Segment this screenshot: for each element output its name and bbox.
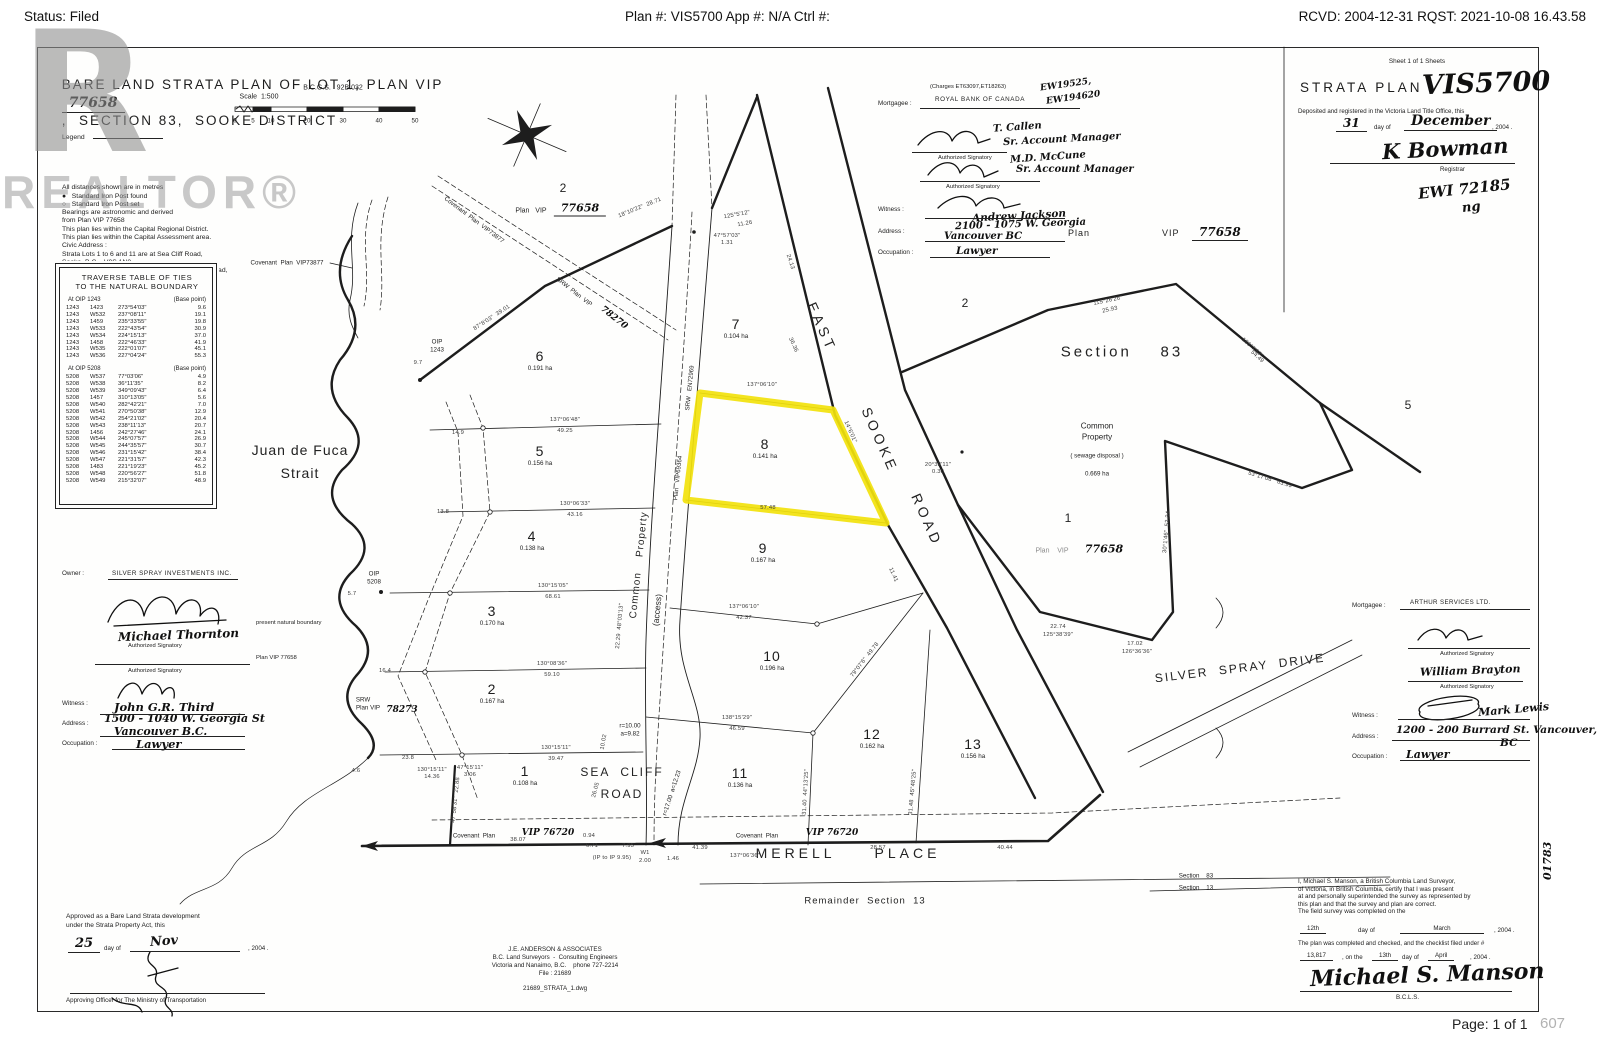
traverse-cell: 7.0 <box>176 402 208 409</box>
traverse-cell: 222°01'07" <box>118 346 176 353</box>
dimension-label: 47°15'11" <box>457 765 483 771</box>
page-count: Page: 1 of 1 <box>1452 1016 1528 1032</box>
dimension-label: 22.74 <box>1050 624 1066 630</box>
traverse-row: 1243W536227°04'24"55.3 <box>66 353 208 360</box>
dimension-label: 14.36 <box>424 774 440 780</box>
map-label: Section 13 <box>1179 885 1213 892</box>
traverse-cell: 5208 <box>66 388 90 395</box>
traverse-cell: 5208 <box>66 374 90 381</box>
traverse-cell: 77°03'06" <box>118 374 176 381</box>
lot-7-label: 70.104 ha <box>724 316 749 340</box>
lot-area: 0.191 ha <box>528 365 553 372</box>
dimension-label: 0.94 <box>583 833 595 839</box>
traverse-cell: 1243 <box>66 312 90 319</box>
traverse-cell: 37.0 <box>176 333 208 340</box>
arthur-witness-label: Witness : <box>1352 712 1378 720</box>
map-label: 1243 <box>430 347 444 354</box>
dimension-label: 13.8 <box>437 509 449 515</box>
traverse-row: 52081457310°13'05"5.6 <box>66 395 208 402</box>
map-label: OIP <box>432 339 443 346</box>
owner-occupation-label: Occupation : <box>62 740 97 748</box>
arthur-address-2: BC <box>1500 737 1517 749</box>
traverse-cell: W543 <box>90 423 118 430</box>
traverse-cell: 6.4 <box>176 388 208 395</box>
traverse-cell: 5208 <box>66 381 90 388</box>
traverse-cell: 224°15'13" <box>118 333 176 340</box>
map-label: ( sewage disposal ) <box>1070 453 1123 460</box>
traverse-cell: W540 <box>90 402 118 409</box>
cert-day-2: 13th <box>1372 952 1398 961</box>
dimension-label: 138°15'29" <box>722 715 752 721</box>
plan-ref-vip: VIP <box>1162 228 1180 238</box>
traverse-cell: 215°32'07" <box>118 478 176 485</box>
lot-number: 7 <box>724 316 749 332</box>
cert-on-the: , on the <box>1342 954 1363 961</box>
traverse-cell: W548 <box>90 471 118 478</box>
certificate-line: this plan and that the survey and plan a… <box>1298 901 1533 909</box>
lot-area: 0.196 ha <box>760 665 785 672</box>
traverse-row: 5208W543238°11'13"20.7 <box>66 423 208 430</box>
certificate-line: of Victoria, in British Columbia, certif… <box>1298 886 1533 894</box>
traverse-cell: W532 <box>90 312 118 319</box>
reg-day: 31 <box>1336 116 1367 132</box>
legend-line: This plan lies within the Capital Region… <box>62 226 242 234</box>
dimension-label: 2.00 <box>639 858 651 864</box>
map-label: 5208 <box>367 579 381 586</box>
traverse-title-2: TO THE NATURAL BOUNDARY <box>66 282 208 291</box>
dimension-label: 1.46 <box>667 856 679 862</box>
map-label: Plan VIP <box>1035 548 1068 555</box>
lot-area: 0.136 ha <box>728 782 753 789</box>
stream <box>180 758 368 904</box>
map-label: 77658 <box>554 202 606 217</box>
traverse-cell: 5208 <box>66 430 90 437</box>
lot-3-label: 30.170 ha <box>480 603 505 627</box>
traverse-cell: 48.9 <box>176 478 208 485</box>
map-label: Covenant Plan <box>736 833 778 840</box>
lot-11-label: 110.136 ha <box>728 765 753 789</box>
cert-year: , 2004 . <box>1494 927 1515 934</box>
dimension-label: 57.48 <box>760 505 776 511</box>
traverse-g1-label: At OIP 1243 <box>68 297 101 303</box>
arthur-auth2-label: Authorized Signatory <box>1440 684 1494 690</box>
dashed-lines <box>364 95 1340 845</box>
dimension-label: 137°06'10" <box>747 382 777 388</box>
traverse-cell: 222°46'33" <box>118 340 176 347</box>
dimension-label: 137°06'36" <box>730 853 760 859</box>
traverse-cell: 4.9 <box>176 374 208 381</box>
lot-area: 0.162 ha <box>860 743 885 750</box>
document-viewer: Status: Filed Plan #: VIS5700 App #: N/A… <box>0 0 1600 1049</box>
legend-line: Civic Address : <box>62 242 242 250</box>
cert-month-2: April <box>1428 952 1454 961</box>
map-label: 5 <box>251 118 254 125</box>
traverse-row: 5208W544245°07'57"26.9 <box>66 436 208 443</box>
traverse-cell: 227°04'24" <box>118 353 176 360</box>
traverse-g1-note: (Base point) <box>174 297 206 303</box>
traverse-title-1: TRAVERSE TABLE OF TIES <box>66 273 208 282</box>
lot-number: 1 <box>513 763 538 779</box>
traverse-cell: 5208 <box>66 443 90 450</box>
traverse-cell: 1457 <box>90 395 118 402</box>
firm-file-number: File : 21689 <box>440 970 670 977</box>
traverse-cell: W535 <box>90 346 118 353</box>
map-label: Section 83 <box>1179 873 1213 880</box>
arthur-mortgagee-label: Mortgagee : <box>1352 602 1386 610</box>
cert-checklist-number: 13,817 <box>1300 952 1333 961</box>
map-label: 2 <box>962 296 969 310</box>
common-property-access-road <box>645 208 712 845</box>
lot-number: 2 <box>480 681 505 697</box>
traverse-cell: 242°27'46" <box>118 430 176 437</box>
rbc-sig2-title: Sr. Account Manager <box>1016 164 1134 175</box>
traverse-row: 5208W540282°42'21"7.0 <box>66 402 208 409</box>
map-label: 5 <box>1405 398 1412 412</box>
rbc-auth-label: Authorized Signatory <box>938 155 992 161</box>
lot8-highlight <box>686 393 886 523</box>
east-sooke-road-west-edge <box>757 95 1035 798</box>
traverse-cell: 220°56'27" <box>118 471 176 478</box>
lot-9-label: 90.167 ha <box>751 540 776 564</box>
traverse-cell: 1423 <box>90 305 118 312</box>
lot-13-label: 130.156 ha <box>961 736 986 760</box>
rbc-charges: (Charges ET63097,ET18263) <box>930 84 1006 90</box>
dimension-label: 20°32'11" <box>925 462 951 468</box>
lot-area: 0.141 ha <box>753 453 778 460</box>
east-sooke-road-east-edge <box>828 88 1103 792</box>
firm-name: J.E. ANDERSON & ASSOCIATES <box>440 946 670 953</box>
lot-8-label: 80.141 ha <box>753 436 778 460</box>
dimension-label: 49.25 <box>557 428 573 434</box>
owner-auth2-label: Authorized Signatory <box>128 668 182 676</box>
map-label: VIP 76720 <box>522 828 574 838</box>
traverse-cell: W539 <box>90 388 118 395</box>
traverse-cell: W537 <box>90 374 118 381</box>
map-label: Plan VIP <box>515 208 546 215</box>
reg-initials: ng <box>1461 199 1481 216</box>
traverse-cell: 282°42'21" <box>118 402 176 409</box>
traverse-row: 1243W533222°43'54"30.9 <box>66 326 208 333</box>
traverse-cell: 5208 <box>66 409 90 416</box>
dimension-label: 17.02 <box>1127 641 1143 647</box>
dimension-label: 38.07 <box>510 837 526 843</box>
dimension-label: 6.71 <box>586 843 598 849</box>
traverse-cell: 5208 <box>66 436 90 443</box>
realtor-watermark-text: REALTOR® <box>2 165 302 219</box>
traverse-row: 5208W53777°03'06"4.9 <box>66 374 208 381</box>
dimension-label: 43.16 <box>567 512 583 518</box>
traverse-row: 5208W549215°32'07"48.9 <box>66 478 208 485</box>
lot-area: 0.108 ha <box>513 780 538 787</box>
map-label: MERELL PLACE <box>756 845 941 861</box>
owner-label: Owner : <box>62 570 84 578</box>
lot-2-label: 20.167 ha <box>480 681 505 705</box>
approval-officer-label: Approving Officer for The Ministry of Tr… <box>66 997 206 1004</box>
arthur-auth-label: Authorized Signatory <box>1440 651 1494 657</box>
traverse-cell: 1458 <box>90 340 118 347</box>
cert-month: March <box>1400 925 1484 934</box>
rbc-occupation-label: Occupation : <box>878 249 913 257</box>
traverse-cell: 5208 <box>66 423 90 430</box>
traverse-row: 12431423273°54'03"9.6 <box>66 305 208 312</box>
lot-area: 0.170 ha <box>480 620 505 627</box>
boundary-note-line: present natural boundary <box>256 620 322 627</box>
dimension-label: 9.7 <box>414 360 423 366</box>
traverse-cell: 238°11'13" <box>118 423 176 430</box>
traverse-row: 12431458222°46'33"41.9 <box>66 340 208 347</box>
traverse-cell: 222°43'54" <box>118 326 176 333</box>
owner-witness-label: Witness : <box>62 700 88 708</box>
traverse-cell: 36°11'35" <box>118 381 176 388</box>
lot-6-label: 60.191 ha <box>528 348 553 372</box>
iron-post-markers <box>423 426 819 757</box>
traverse-row: 1243W532237°08'11"19.1 <box>66 312 208 319</box>
dimension-label: 16.4 <box>379 668 391 674</box>
traverse-cell: 45.1 <box>176 346 208 353</box>
dimension-label: 59.10 <box>544 672 560 678</box>
traverse-cell: 19.1 <box>176 312 208 319</box>
sheet-count: Sheet 1 of 1 Sheets <box>1352 58 1482 65</box>
owner-address-label: Address : <box>62 720 89 728</box>
rbc-bank-name: ROYAL BANK OF CANADA <box>935 96 1025 103</box>
traverse-cell: 237°08'11" <box>118 312 176 319</box>
traverse-cell: 5208 <box>66 416 90 423</box>
arthur-address-1: 1200 - 200 Burrard St. Vancouver, <box>1396 724 1597 736</box>
lot-number: 9 <box>751 540 776 556</box>
traverse-row: 1243W535222°01'07"45.1 <box>66 346 208 353</box>
traverse-row: 5208W546231°15'42"38.4 <box>66 450 208 457</box>
traverse-cell: W545 <box>90 443 118 450</box>
rbc-auth2-label: Authorized Signatory <box>946 184 1000 190</box>
lot-area: 0.138 ha <box>520 545 545 552</box>
traverse-row: 1243W534224°15'13"37.0 <box>66 333 208 340</box>
traverse-row: 52081456242°27'46"24.1 <box>66 430 208 437</box>
map-label: 77658 <box>1085 543 1123 556</box>
dimension-label: 130°15'11" <box>417 767 447 773</box>
traverse-cell: W538 <box>90 381 118 388</box>
traverse-cell: 310°13'05" <box>118 395 176 402</box>
traverse-cell: 1459 <box>90 319 118 326</box>
cert-day: 12th <box>1300 925 1326 934</box>
approval-day-of: day of <box>104 945 121 952</box>
dimension-label: 23.8 <box>402 755 414 761</box>
reg-day-of: day of <box>1374 124 1391 131</box>
plan-ref-plan: Plan <box>1068 228 1090 238</box>
traverse-cell: 30.7 <box>176 443 208 450</box>
dimension-label: 126°36'36" <box>1122 649 1152 655</box>
lot-5-label: 50.156 ha <box>528 443 553 467</box>
cert-day-of: day of <box>1358 927 1375 934</box>
traverse-cell: 41.9 <box>176 340 208 347</box>
reg-month: December <box>1404 113 1497 131</box>
approval-month: Nov <box>150 933 179 950</box>
dimension-label: 68.61 <box>545 594 561 600</box>
lot-1-label: 10.108 ha <box>513 763 538 787</box>
traverse-cell: 9.6 <box>176 305 208 312</box>
traverse-row: 5208W53836°11'35"8.2 <box>66 381 208 388</box>
traverse-cell: 231°15'42" <box>118 450 176 457</box>
map-label: SRW <box>356 697 370 704</box>
dimension-label: 5.7 <box>348 591 357 597</box>
map-label: Scale 1:500 <box>240 94 279 101</box>
lot-area: 0.156 ha <box>528 460 553 467</box>
traverse-row: 5208W548220°56'27"51.8 <box>66 471 208 478</box>
traverse-cell: 5208 <box>66 478 90 485</box>
dimension-label: 47°57'03" <box>714 233 741 239</box>
map-label: Common <box>1081 422 1113 431</box>
arthur-name: ARTHUR SERVICES LTD. <box>1410 599 1491 606</box>
traverse-cell: W534 <box>90 333 118 340</box>
rbc-occupation: Lawyer <box>956 245 998 257</box>
lot-number: 12 <box>860 726 885 742</box>
map-label: 10 <box>268 118 275 125</box>
map-label: r=10.00 <box>619 723 640 730</box>
map-label: 30 <box>340 118 347 125</box>
map-label: Plan VIP <box>356 705 380 712</box>
traverse-cell: 254°21'02" <box>118 416 176 423</box>
lot-number: 5 <box>528 443 553 459</box>
dimension-label: 130°15'11" <box>541 745 571 751</box>
lot-12-label: 120.162 ha <box>860 726 885 750</box>
traverse-cell: 349°09'43" <box>118 388 176 395</box>
dimension-label: 7.95 <box>622 843 634 849</box>
traverse-cell: 12.9 <box>176 409 208 416</box>
map-label: 2 <box>560 181 567 195</box>
map-label: ROAD <box>601 787 644 801</box>
approval-year: , 2004 . <box>248 945 269 952</box>
approval-day: 25 <box>68 936 100 953</box>
bcls-label: B.C.L.S. <box>1396 994 1419 1001</box>
traverse-cell: 1243 <box>66 346 90 353</box>
dimension-label: 4.6 <box>352 768 361 774</box>
traverse-cell: 5208 <box>66 450 90 457</box>
owner-auth-label: Authorized Signatory <box>128 643 182 651</box>
traverse-table: TRAVERSE TABLE OF TIES TO THE NATURAL BO… <box>55 263 217 509</box>
traverse-cell: W549 <box>90 478 118 485</box>
traverse-cell: 1243 <box>66 326 90 333</box>
map-label: 20 <box>304 118 311 125</box>
owner-name: SILVER SPRAY INVESTMENTS INC. <box>112 570 232 578</box>
dimension-label: 130°06'33" <box>560 501 590 507</box>
certificate-line: at and personally superintended the surv… <box>1298 893 1533 901</box>
lot-number: 4 <box>520 528 545 544</box>
traverse-cell: 1243 <box>66 333 90 340</box>
traverse-cell: 244°35'57" <box>118 443 176 450</box>
traverse-cell: 20.7 <box>176 423 208 430</box>
east-block-boundary <box>902 284 1420 472</box>
traverse-cell: 5208 <box>66 464 90 471</box>
traverse-cell: 5208 <box>66 395 90 402</box>
map-label: 1 <box>1065 511 1072 525</box>
boundary-note: present natural boundary Plan VIP 77658 <box>256 606 322 676</box>
lot-number: 3 <box>480 603 505 619</box>
traverse-cell: 42.3 <box>176 457 208 464</box>
reg-year: , 2004 . <box>1492 124 1513 131</box>
traverse-cell: 24.1 <box>176 430 208 437</box>
traverse-row: 5208W542254°21'02"20.4 <box>66 416 208 423</box>
traverse-cell: 1243 <box>66 305 90 312</box>
lot-number: 13 <box>961 736 986 752</box>
traverse-g2-label: At OIP 5208 <box>68 366 101 372</box>
legend-line: This plan lies within the Capital Assess… <box>62 234 242 242</box>
lot-number: 6 <box>528 348 553 364</box>
map-label: Covenant Plan <box>453 833 495 840</box>
traverse-cell: W541 <box>90 409 118 416</box>
traverse-cell: 30.9 <box>176 326 208 333</box>
traverse-cell: 270°50'38" <box>118 409 176 416</box>
cert-checklist-line: The plan was completed and checked, and … <box>1298 940 1484 947</box>
arthur-address-label: Address : <box>1352 733 1379 741</box>
dimension-label: 3.06 <box>464 772 476 778</box>
map-label: 0.669 ha <box>1085 471 1109 478</box>
traverse-row: 5208W545244°35'57"30.7 <box>66 443 208 450</box>
traverse-cell: 19.8 <box>176 319 208 326</box>
traverse-cell: 8.2 <box>176 381 208 388</box>
traverse-cell: 1243 <box>66 319 90 326</box>
dimension-label: 0.30 <box>932 469 944 475</box>
dimension-label: 125°38'39" <box>1043 632 1073 638</box>
registrar-label: Registrar <box>1440 166 1465 173</box>
map-label: SEA CLIFF <box>580 765 663 779</box>
lot-number: 11 <box>728 765 753 781</box>
traverse-cell: W546 <box>90 450 118 457</box>
plan-ref-number: 77658 <box>1192 225 1248 241</box>
map-label: Covenant Plan VIP73877 <box>251 260 324 267</box>
dimension-label: 1.31 <box>721 240 733 246</box>
map-label: B.C.G.S. 92B.032 <box>303 85 363 92</box>
rbc-witness-label: Witness : <box>878 206 904 214</box>
approval-line-2: under the Strata Property Act, this <box>66 922 165 929</box>
rbc-address-label: Address : <box>878 228 905 236</box>
traverse-row: 12431459235°33'55"19.8 <box>66 319 208 326</box>
strata-plan-label: STRATA PLAN <box>1300 80 1423 95</box>
map-label: OIP <box>369 571 380 578</box>
traverse-cell: W544 <box>90 436 118 443</box>
traverse-cell: W533 <box>90 326 118 333</box>
dimension-label: 46.59 <box>729 726 745 732</box>
legend-line: Strata Lots 1 to 6 and 11 are at Sea Cli… <box>62 251 242 259</box>
traverse-cell: 55.3 <box>176 353 208 360</box>
page-watermark-overlay: 607 <box>1540 1015 1565 1032</box>
traverse-cell: 26.9 <box>176 436 208 443</box>
traverse-cell: 1243 <box>66 353 90 360</box>
map-label: 78273 <box>386 705 417 715</box>
dimension-label: 40.44 <box>997 845 1013 851</box>
north-arrow-icon <box>488 96 566 174</box>
lot-dividers <box>330 203 1390 891</box>
traverse-row: 52081483221°19'23"45.2 <box>66 464 208 471</box>
approval-line-1: Approved as a Bare Land Strata developme… <box>66 913 200 920</box>
map-label: Section 83 <box>1061 344 1183 361</box>
traverse-cell: 45.2 <box>176 464 208 471</box>
lot-number: 8 <box>753 436 778 452</box>
firm-drawing-file: 21689_STRATA_1.dwg <box>440 985 670 992</box>
traverse-row: 5208W541270°50'38"12.9 <box>66 409 208 416</box>
traverse-cell: 1456 <box>90 430 118 437</box>
dimension-label: 130°08'36" <box>537 661 567 667</box>
dimension-label: 14.9 <box>452 430 464 436</box>
traverse-cell: 245°07'57" <box>118 436 176 443</box>
lot-area: 0.156 ha <box>961 753 986 760</box>
traverse-cell: W547 <box>90 457 118 464</box>
map-label: Juan de Fuca <box>252 442 349 458</box>
traverse-cell: 1243 <box>66 340 90 347</box>
lot-4-label: 40.138 ha <box>520 528 545 552</box>
traverse-g2-note: (Base point) <box>174 366 206 372</box>
traverse-cell: W536 <box>90 353 118 360</box>
traverse-cell: 221°19'23" <box>118 464 176 471</box>
lot-area: 0.104 ha <box>724 333 749 340</box>
